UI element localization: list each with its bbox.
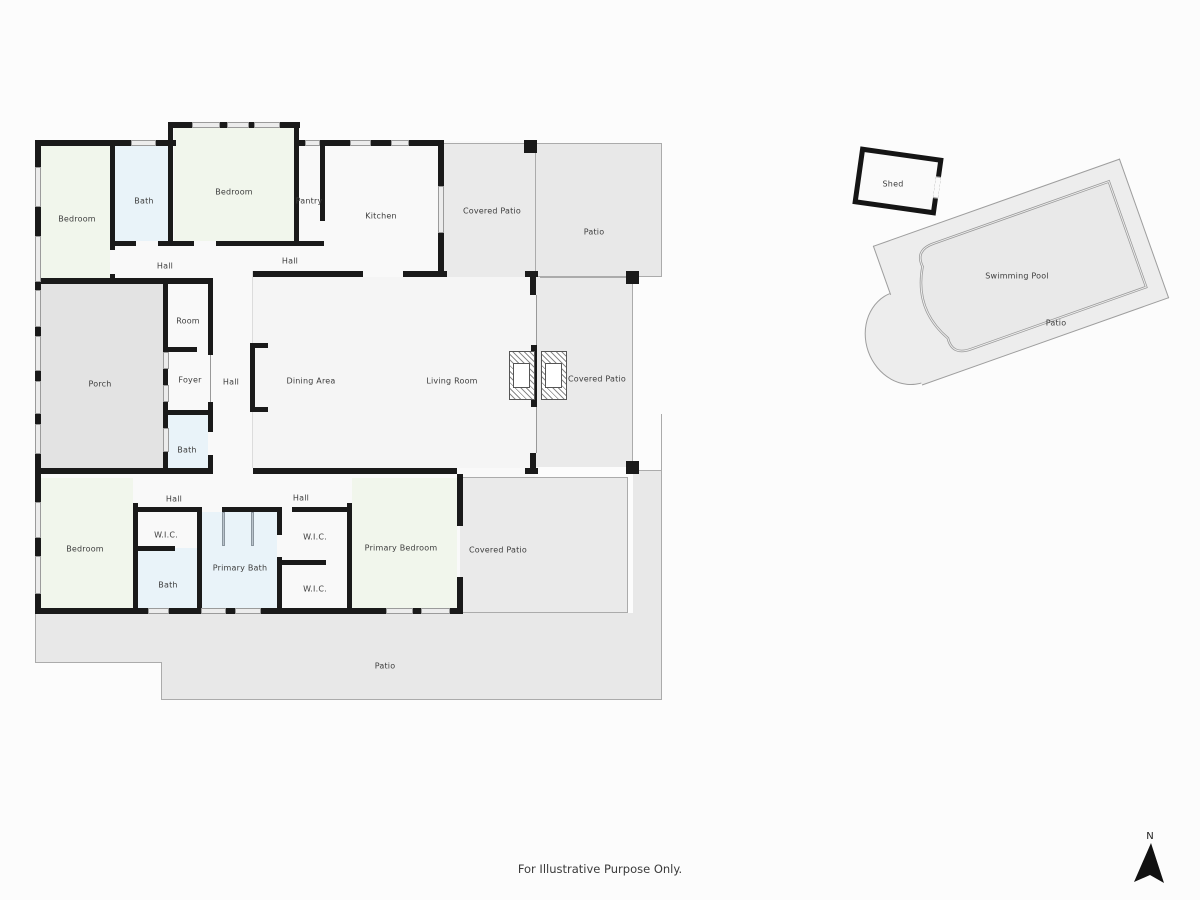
bedroom-2-floor	[174, 128, 294, 241]
patio-post	[626, 271, 639, 284]
label-pool-patio: Patio	[1046, 319, 1067, 328]
window	[254, 122, 280, 128]
wall	[253, 468, 457, 474]
north-arrow-icon	[1124, 828, 1174, 888]
window	[391, 140, 409, 146]
label-hall-b: Hall	[282, 257, 298, 266]
window	[421, 608, 450, 614]
patio-edge	[35, 662, 161, 663]
firebox	[513, 363, 530, 388]
wall	[438, 233, 444, 277]
wall	[277, 557, 282, 613]
wall	[277, 507, 282, 535]
wall	[110, 146, 115, 250]
patio-edge	[632, 277, 633, 463]
wall	[280, 560, 326, 565]
wall	[530, 453, 536, 474]
label-patio-top: Patio	[584, 228, 605, 237]
patio-edge	[460, 612, 628, 613]
window	[148, 608, 169, 614]
dining-living-floor	[253, 277, 536, 468]
label-wic-2: W.I.C.	[303, 533, 327, 542]
wall	[208, 402, 213, 410]
window	[35, 236, 41, 282]
wall	[320, 146, 325, 221]
label-bath-2: Bath	[177, 446, 196, 455]
bath-1-floor	[115, 146, 168, 241]
patio-edge	[35, 613, 36, 663]
label-hall-c: Hall	[223, 378, 239, 387]
label-covered-patio-top: Covered Patio	[463, 207, 521, 216]
glass-wall	[536, 295, 537, 345]
wall	[530, 271, 536, 295]
window	[192, 122, 220, 128]
patio-edge	[161, 699, 662, 700]
wall	[208, 410, 213, 432]
wall	[208, 284, 213, 347]
wall	[438, 146, 444, 186]
footer-disclaimer: For Illustrative Purpose Only.	[0, 862, 1200, 876]
window	[201, 608, 226, 614]
window	[35, 336, 41, 371]
wall	[135, 546, 175, 551]
label-shed: Shed	[883, 180, 904, 189]
window	[35, 424, 41, 454]
shower-glass	[251, 512, 254, 546]
label-hall-a: Hall	[157, 262, 173, 271]
wall	[133, 503, 138, 613]
window	[131, 140, 156, 146]
window	[163, 352, 169, 369]
wall	[216, 241, 294, 246]
patio-edge	[540, 277, 633, 278]
label-bedroom-3: Bedroom	[66, 545, 104, 554]
patio-edge	[661, 613, 662, 699]
label-covered-patio-right: Covered Patio	[568, 375, 626, 384]
window	[35, 167, 41, 207]
wall	[347, 503, 352, 613]
label-primary-bedroom: Primary Bedroom	[365, 544, 438, 553]
label-porch: Porch	[88, 380, 111, 389]
label-patio-bottom: Patio	[375, 662, 396, 671]
patio-edge	[460, 477, 628, 478]
patio-edge	[661, 143, 662, 277]
primary-bath-floor	[202, 512, 277, 608]
label-wic-1: W.I.C.	[154, 531, 178, 540]
wall	[208, 455, 213, 474]
patio-edge	[661, 414, 662, 613]
wall	[292, 507, 347, 512]
label-swimming-pool: Swimming Pool	[985, 272, 1049, 281]
label-kitchen: Kitchen	[365, 212, 396, 221]
window	[350, 140, 371, 146]
label-bath-3: Bath	[158, 581, 177, 590]
label-primary-bath: Primary Bath	[213, 564, 267, 573]
window	[163, 385, 169, 402]
patio-edge	[443, 143, 662, 144]
patio-post	[626, 461, 639, 474]
wall	[35, 140, 41, 613]
bedroom-3-floor	[41, 478, 133, 608]
wall	[457, 577, 463, 614]
glass-wall	[536, 407, 537, 453]
label-pantry: Pantry	[296, 197, 323, 206]
label-room: Room	[176, 317, 200, 326]
bath-2-floor	[168, 415, 208, 468]
window	[305, 140, 320, 146]
wall	[294, 128, 299, 246]
label-wic-3: W.I.C.	[303, 585, 327, 594]
shed-door	[933, 176, 941, 198]
patio-right-strip	[633, 470, 661, 613]
label-covered-patio-bottom: Covered Patio	[469, 546, 527, 555]
label-dining-area: Dining Area	[287, 377, 336, 386]
window	[227, 122, 249, 128]
label-bedroom-2: Bedroom	[215, 188, 253, 197]
patio-bottom-left	[36, 613, 161, 662]
wall	[253, 271, 363, 277]
wall	[208, 347, 213, 355]
patio-edge	[161, 662, 162, 699]
label-bedroom-1: Bedroom	[58, 215, 96, 224]
wall	[250, 343, 255, 412]
patio-edge	[627, 477, 628, 613]
porch-floor	[41, 284, 163, 468]
window	[35, 502, 41, 538]
window	[235, 608, 261, 614]
wall	[222, 507, 278, 512]
wall	[35, 468, 213, 474]
wall	[457, 474, 463, 526]
foyer-door-track	[210, 350, 211, 410]
window	[163, 428, 169, 452]
label-living-room: Living Room	[426, 377, 477, 386]
bath-3-floor	[138, 548, 197, 608]
wall	[35, 278, 213, 284]
patio-top	[536, 144, 661, 276]
wall	[135, 507, 197, 512]
label-bath-1: Bath	[134, 197, 153, 206]
shower-glass	[222, 512, 225, 546]
firebox	[545, 363, 562, 388]
wall	[173, 241, 194, 246]
wall	[110, 274, 115, 284]
window	[386, 608, 413, 614]
patio-post	[524, 140, 537, 153]
window	[35, 381, 41, 414]
patio-bottom-main	[161, 613, 661, 699]
window	[35, 556, 41, 594]
wall	[168, 128, 173, 246]
wall	[163, 410, 213, 415]
wall	[197, 507, 202, 613]
label-hall-d: Hall	[166, 495, 182, 504]
floor-plan-canvas: Bedroom Bath Bedroom Pantry Kitchen Cove…	[0, 0, 1200, 900]
sliding-door	[438, 186, 444, 233]
label-foyer: Foyer	[178, 376, 201, 385]
window	[35, 290, 41, 327]
bedroom-1-floor	[41, 146, 110, 278]
patio-edge	[535, 144, 536, 277]
label-hall-e: Hall	[293, 494, 309, 503]
